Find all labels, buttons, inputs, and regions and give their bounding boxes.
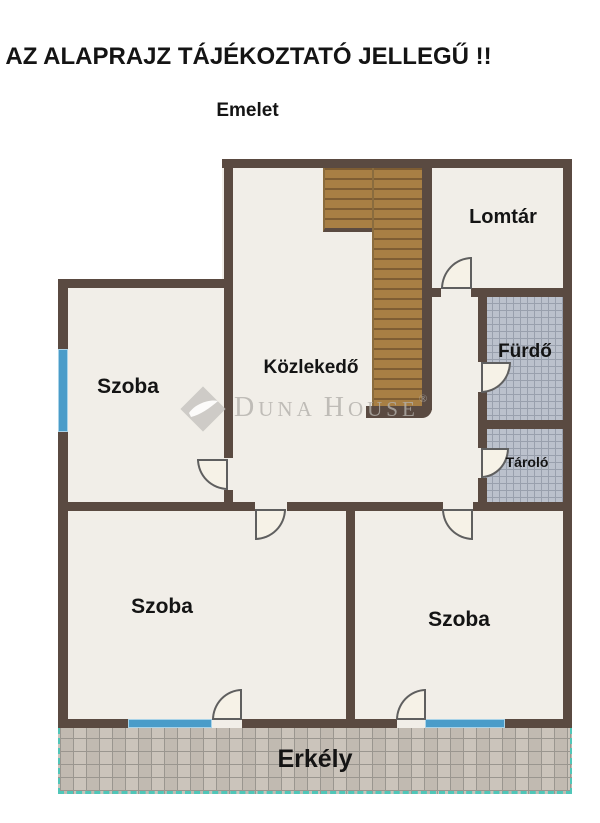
registered-mark-icon: ® [419,393,427,405]
wall-bottom-outer-right-seg [505,719,572,728]
wall-mid-horizontal-center-seg [287,502,443,511]
room-label-storage: Tároló [487,454,567,470]
floor-plan-page: AZ ALAPRAJZ TÁJÉKOZTATÓ JELLEGŰ !! Emele… [0,0,600,823]
wall-mid-horizontal-left-seg [58,502,255,511]
wall-bath-storage-divider [478,420,572,429]
floor-name-subtitle: Emelet [0,100,495,122]
wall-left-outer-upper [58,279,68,349]
window-bottom-right-room [425,719,505,728]
wall-left-outer-lower [58,432,68,728]
watermark-brand-text: DUNAHOUSE® [234,392,427,424]
room-label-hallway: Közlekedő [231,357,391,379]
room-label-left-room: Szoba [58,375,198,399]
wall-bottom-outer-left-seg [58,719,128,728]
room-label-lumber: Lomtár [433,206,573,229]
wall-top-outer [222,159,572,168]
wall-mid-horizontal-right-seg [473,502,572,511]
wall-bottom-outer-center-seg [242,719,397,728]
staircase-upper-flight [323,168,372,232]
duna-house-diamond-logo-icon [178,384,228,434]
room-label-bottom-left-room: Szoba [92,595,232,619]
disclaimer-title: AZ ALAPRAJZ TÁJÉKOZTATÓ JELLEGŰ !! [0,43,497,71]
wall-stairs-lumber-divider [422,159,432,410]
brand-watermark: DUNAHOUSE® [178,384,438,436]
room-label-bottom-right-room: Szoba [389,608,529,632]
wall-bottom-rooms-divider [346,511,355,720]
room-label-bathroom: Fürdő [485,341,565,363]
wall-lumber-bottom-left-seg [423,288,441,297]
wall-room-left-top [58,279,233,288]
window-bottom-left-room [128,719,212,728]
room-label-balcony: Erkély [58,745,572,774]
wall-right-outer [563,159,572,728]
